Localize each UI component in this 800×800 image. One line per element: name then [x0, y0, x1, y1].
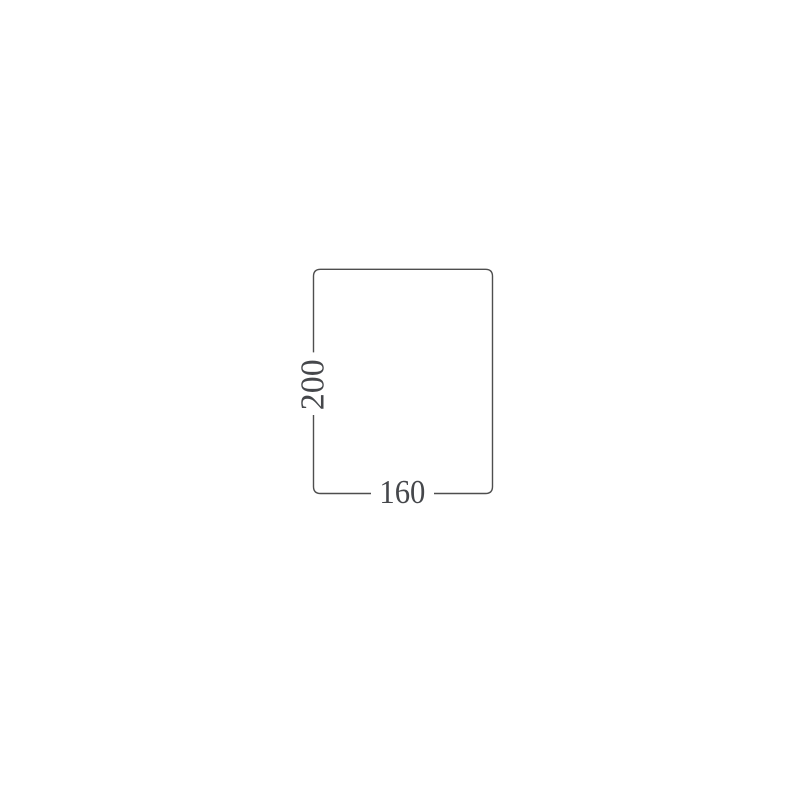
- svg-text:200: 200: [295, 359, 332, 410]
- svg-text:160: 160: [379, 474, 425, 511]
